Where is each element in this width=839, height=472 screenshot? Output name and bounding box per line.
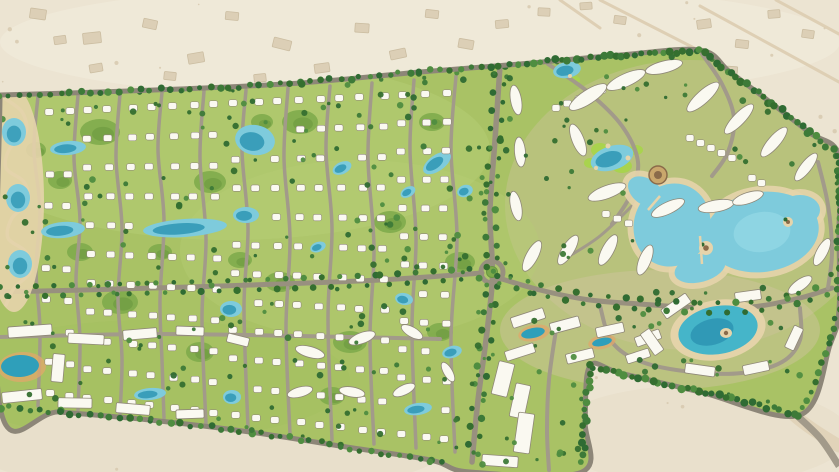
master-plan-map	[0, 0, 839, 472]
map-canvas	[0, 0, 839, 472]
